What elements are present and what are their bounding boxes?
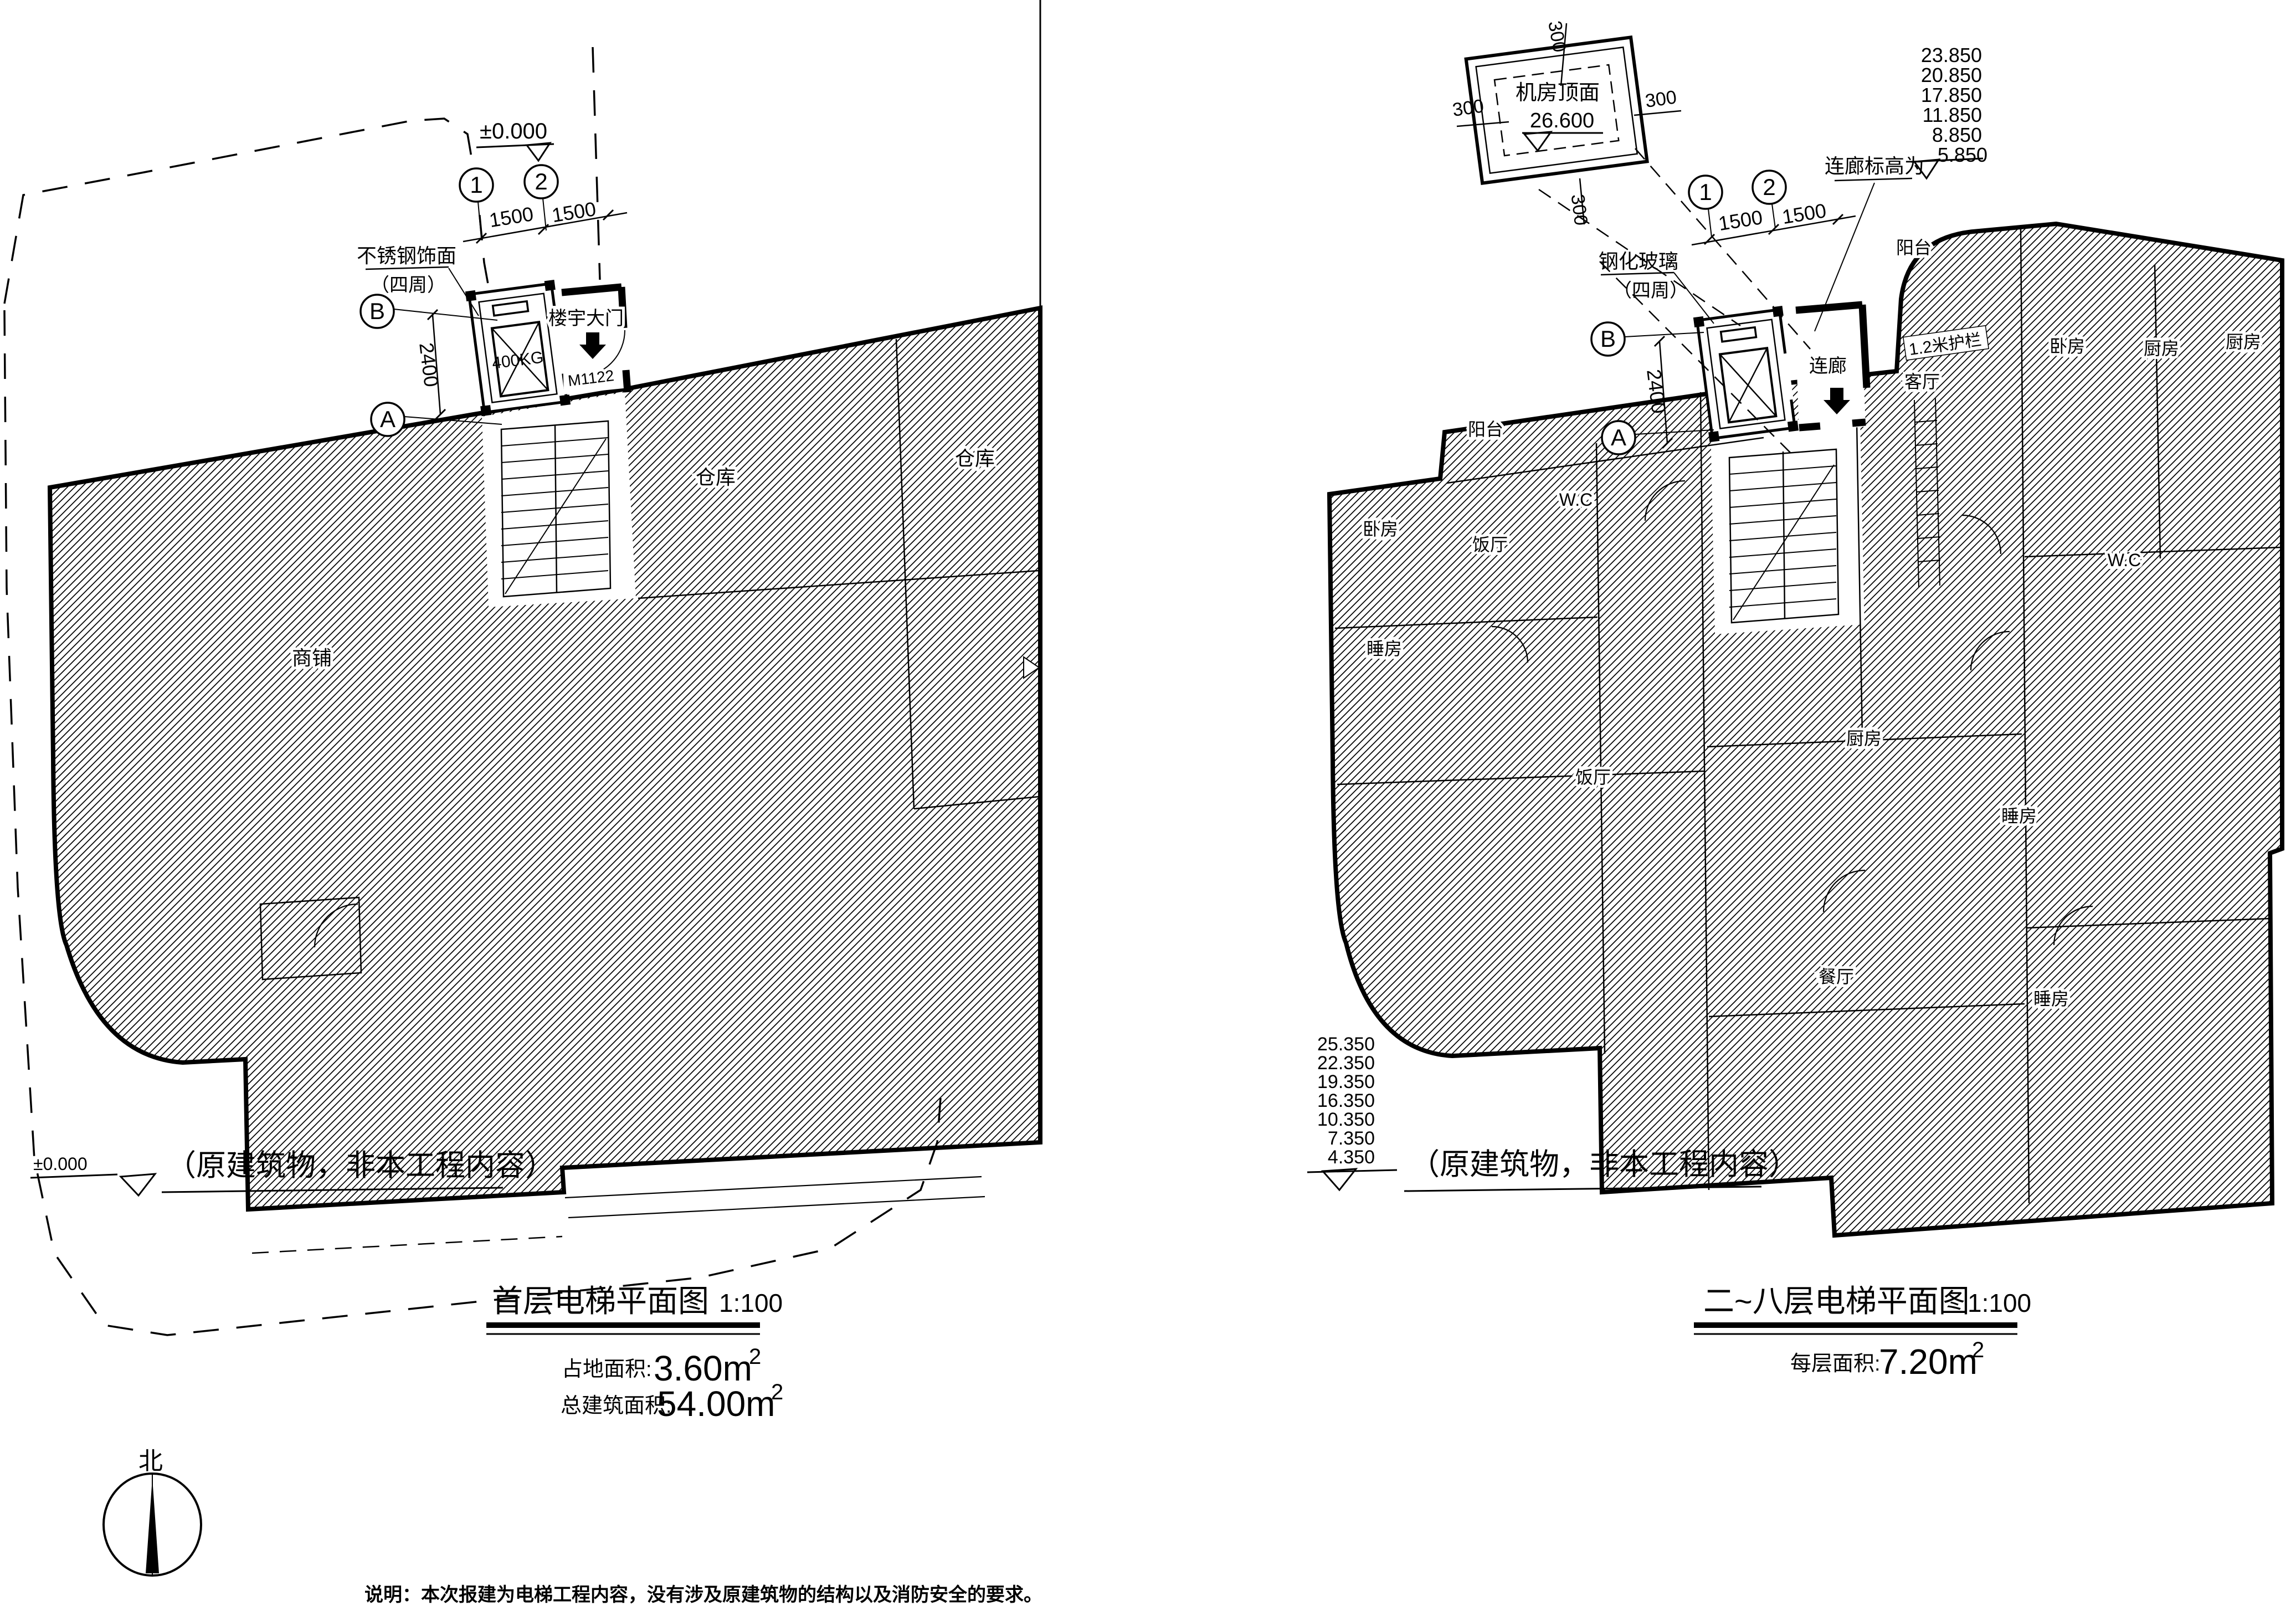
stat-value: 3.60m [654,1348,752,1388]
room-label: 商铺 [292,646,332,669]
corridor-right: 连廊 [1795,305,1867,432]
machine-room-label: 机房顶面 [1516,81,1600,105]
plan-title: 二~八层电梯平面图 [1703,1284,1970,1318]
level-item: 20.850 [1921,64,1982,86]
level-value: ±0.000 [33,1154,88,1174]
stair-lobby-zone [1711,415,1864,634]
level-item: 8.850 [1932,124,1982,146]
dim-bay: 1500 [487,202,535,232]
glass-text2: （四周） [1613,280,1688,301]
level-item: 22.350 [1317,1053,1375,1074]
dim-bay: 1500 [550,197,598,227]
room-label: 餐厅 [1819,967,1854,987]
room-label: 卧房 [1363,519,1398,539]
room-label: 厨房 [1846,728,1882,748]
title-right: 二~八层电梯平面图 1:100 每层面积: 7.20m 2 [1694,1284,2031,1382]
grid-col2: 2 [535,168,547,194]
machine-room-level: 26.600 [1530,109,1594,132]
dim-bay: 1500 [1780,199,1828,228]
grid-col1: 1 [1699,179,1712,205]
grid-row-a: A [1611,424,1626,450]
corridor-label: 连廊 [1809,356,1847,377]
dim-depth: 2400 [415,341,443,388]
level-item: 23.850 [1921,44,1982,66]
general-note: 说明：本次报建为电梯工程内容，没有涉及原建筑物的结构以及消防安全的要求。 [364,1584,1042,1605]
level-item: 25.350 [1317,1034,1375,1055]
drawing-sheet: 400KG M1122 楼宇大门 ±0.000 1 2 1500 1500 [0,0,2296,1606]
north-label: 北 [138,1448,163,1475]
room-label: 仓库 [955,447,995,470]
level-item: 4.350 [1328,1147,1375,1168]
room-label: W.C [2108,550,2141,570]
right-plan: 连廊 机房顶面 26.600 [1307,19,2282,1382]
level-value: ±0.000 [480,119,547,143]
room-label: 睡房 [2033,989,2069,1009]
room-label: 客厅 [1904,372,1940,392]
stat-sup: 2 [771,1380,783,1404]
room-label: 仓库 [696,466,736,489]
room-label: 饭厅 [1472,535,1508,555]
dim-bay: 1500 [1717,206,1764,235]
grid-row-b: B [369,298,385,324]
stat-sup: 2 [749,1345,761,1369]
level-item: 17.850 [1921,84,1982,106]
dim-wall: 300 [1644,86,1678,112]
level-marker-top-left: ±0.000 [476,119,554,161]
corridor-note: 连廊标高为 [1825,155,1924,177]
level-item: 19.350 [1317,1071,1375,1092]
plan-title: 首层电梯平面图 [492,1284,709,1318]
stat-value: 7.20m [1879,1342,1977,1382]
room-label: 阳台 [1896,238,1932,258]
stat-sup: 2 [1972,1338,1984,1362]
dim-wall: 300 [1451,95,1485,121]
finish-text2: （四周） [371,275,446,296]
left-plan: 400KG M1122 楼宇大门 ±0.000 1 2 1500 1500 [4,0,1040,1424]
glass-text1: 钢化玻璃 [1599,250,1678,273]
north-needle-icon [146,1478,159,1573]
dim-wall: 300 [1567,193,1592,227]
title-left: 首层电梯平面图 1:100 占地面积: 3.60m 2 总建筑面积: 54.00… [486,1284,783,1424]
finish-text1: 不锈钢饰面 [357,244,456,267]
existing-note: （原建筑物，非本工程内容） [1410,1148,1799,1181]
grid-col2: 2 [1763,174,1775,200]
room-label: 睡房 [1367,639,1402,659]
room-label: 厨房 [2144,338,2179,358]
level-item: 7.350 [1328,1128,1375,1149]
elevator-shaft-right [1693,306,1799,442]
stat-label: 总建筑面积: [561,1394,672,1418]
elevator-shaft-left [465,280,571,416]
grid-row-b: B [1600,326,1616,352]
room-label: 厨房 [2226,332,2261,352]
room-label: 饭厅 [1575,767,1611,787]
stat-label: 每层面积: [1790,1352,1881,1376]
room-label: 阳台 [1468,419,1503,439]
plan-scale: 1:100 [719,1289,783,1317]
level-item: 10.350 [1317,1109,1375,1130]
room-label: 睡房 [2001,806,2037,826]
level-item: 5.850 [1938,143,1987,166]
existing-note: （原建筑物，非本工程内容） [166,1149,555,1182]
stat-label: 占地面积: [562,1358,652,1381]
grid-row-a: A [380,406,395,432]
boundary-line [593,47,600,280]
entrance-label: 楼宇大门 [548,308,624,329]
level-item: 11.850 [1923,104,1982,126]
north-compass: 北 [104,1448,201,1576]
room-label: W.C [1559,490,1593,510]
grid-col1: 1 [470,172,482,198]
room-label: 卧房 [2050,336,2085,356]
plan-scale: 1:100 [1968,1289,2031,1317]
level-item: 16.350 [1317,1090,1375,1111]
stat-value: 54.00m [657,1384,775,1424]
